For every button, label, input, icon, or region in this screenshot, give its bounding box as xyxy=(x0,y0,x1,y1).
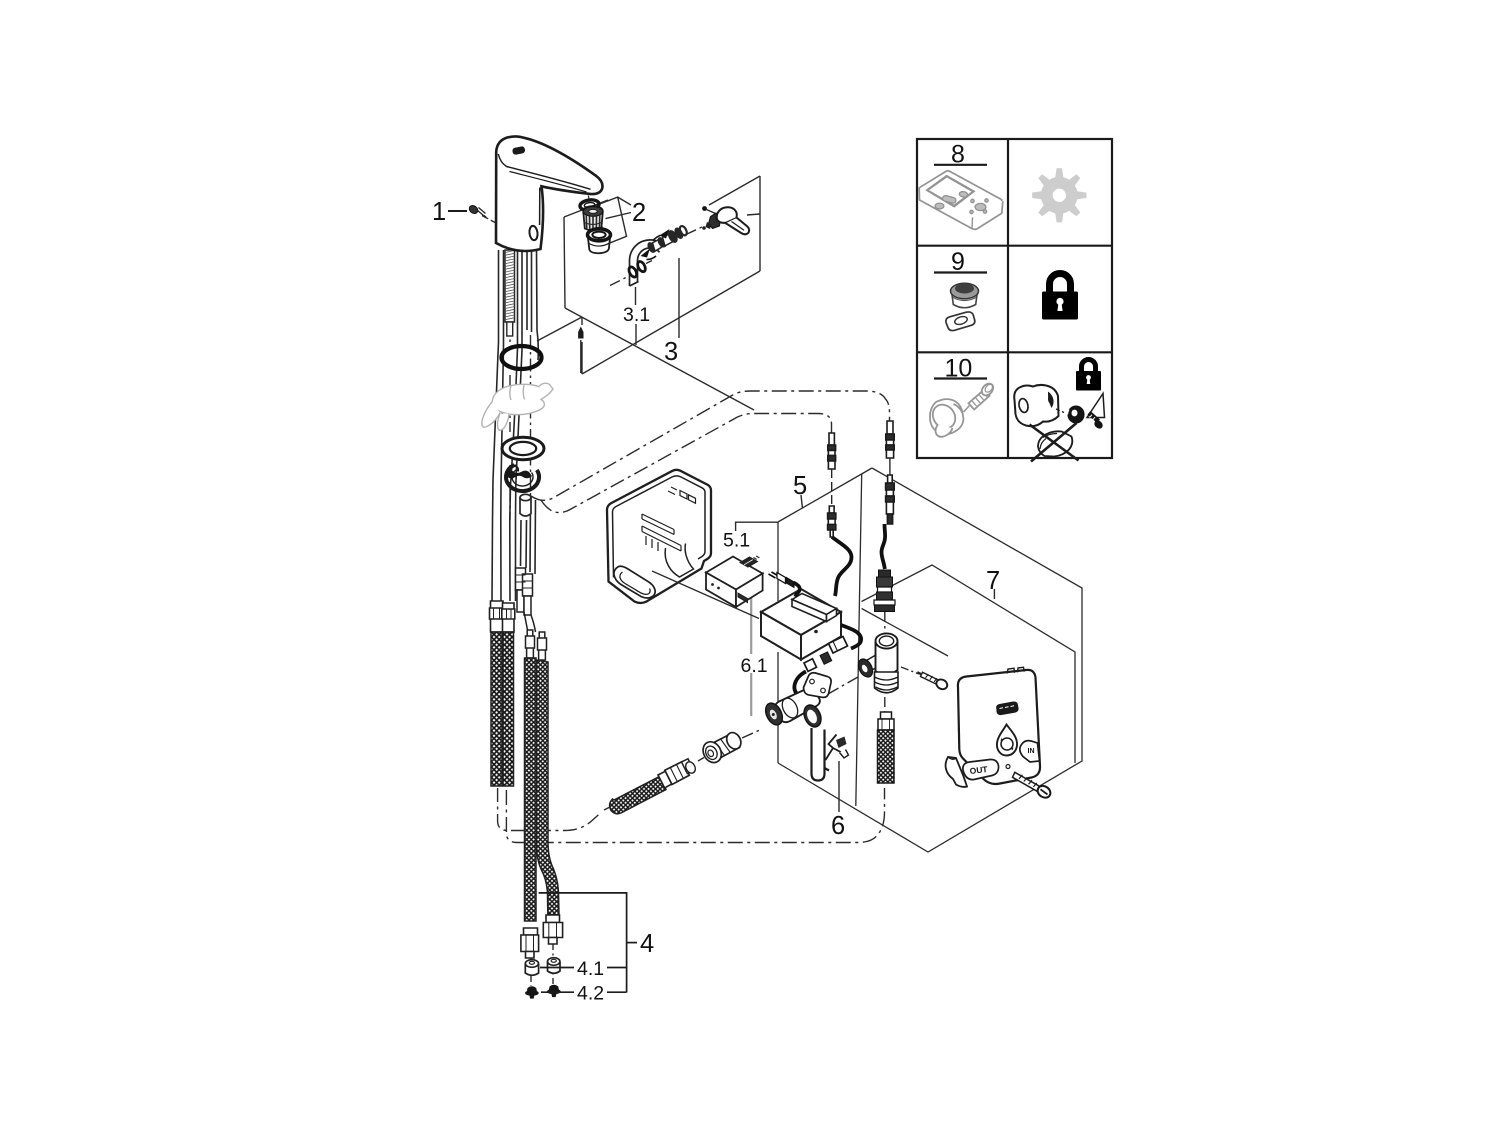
svg-text:IN: IN xyxy=(1028,748,1035,755)
svg-text:3.1: 3.1 xyxy=(623,304,650,326)
svg-text:6.1: 6.1 xyxy=(741,655,768,677)
svg-text:7: 7 xyxy=(986,567,1000,595)
svg-text:5: 5 xyxy=(793,472,807,500)
svg-text:1: 1 xyxy=(432,198,446,226)
svg-text:4.2: 4.2 xyxy=(577,983,604,1005)
svg-text:OUT: OUT xyxy=(969,764,989,776)
svg-text:4.1: 4.1 xyxy=(577,958,604,980)
svg-text:3: 3 xyxy=(664,338,678,366)
svg-text:6: 6 xyxy=(831,812,845,840)
svg-text:5.1: 5.1 xyxy=(723,530,750,552)
svg-text:2: 2 xyxy=(632,199,646,227)
svg-text:4: 4 xyxy=(640,930,654,958)
